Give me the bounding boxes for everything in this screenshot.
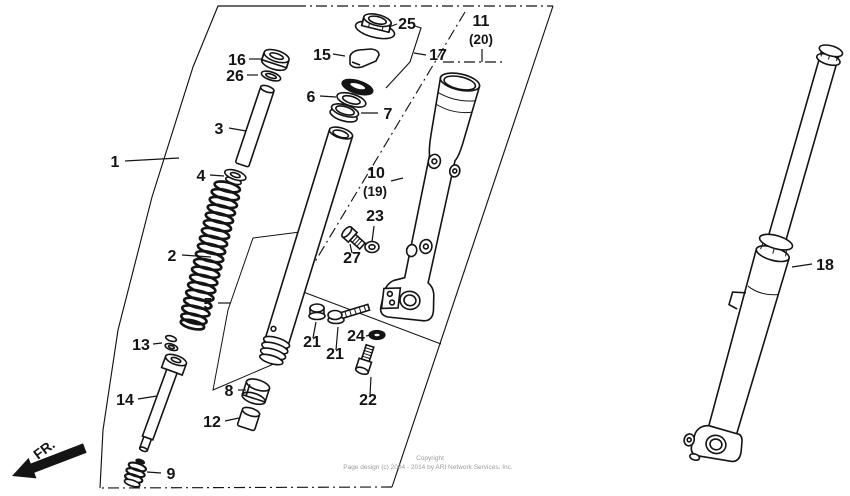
drain-bolt-22-drawing — [355, 344, 376, 376]
part-label-21b: 21 — [326, 346, 344, 363]
parts-diagram-page: FR. Copyright Page design (c) 2004 - 201… — [0, 0, 850, 496]
part-label-9: 9 — [167, 466, 176, 483]
copyright-line2: Page design (c) 2004 - 2014 by ARI Netwo… — [343, 464, 513, 471]
leader-line-1 — [125, 158, 179, 161]
part-label-10b: (19) — [363, 184, 387, 199]
bolt-27-drawing — [340, 225, 367, 251]
exploded-view-canvas: FR. Copyright Page design (c) 2004 - 201… — [0, 0, 850, 496]
part-label-6: 6 — [307, 89, 316, 106]
part-label-4: 4 — [197, 168, 206, 185]
o-ring-26-drawing — [260, 69, 281, 83]
leader-line-6 — [320, 96, 336, 97]
part-label-10: 10 — [367, 165, 385, 182]
leader-line-17 — [414, 53, 426, 55]
part-label-21a: 21 — [303, 334, 321, 351]
part-label-2: 2 — [168, 248, 177, 265]
piston-ring-13-drawing — [162, 334, 180, 351]
fork-bolt-16-drawing — [260, 47, 291, 73]
fork-tube-drawing — [257, 124, 355, 367]
part-label-14: 14 — [116, 392, 134, 409]
bolt-21a-drawing — [309, 304, 325, 320]
leader-line-15 — [333, 54, 345, 56]
part-label-11: 11 — [473, 13, 490, 30]
part-label-7: 7 — [384, 106, 393, 123]
nut-23-drawing — [365, 242, 379, 253]
part-label-12: 12 — [203, 414, 221, 431]
leader-line-4 — [210, 175, 224, 176]
part-label-8: 8 — [225, 383, 234, 400]
part-label-23: 23 — [366, 208, 384, 225]
part-label-22: 22 — [359, 392, 377, 409]
copyright-line1: Copyright — [416, 455, 444, 462]
damper-rod-14-drawing — [133, 352, 188, 455]
leader-line-14 — [138, 396, 157, 399]
boundary-bottom-dashdot — [100, 487, 392, 488]
fr-direction-arrow: FR. — [8, 436, 89, 486]
washer-24-drawing — [369, 331, 385, 340]
part-label-13: 13 — [132, 337, 150, 354]
part-label-25: 25 — [398, 16, 416, 33]
part-label-18: 18 — [816, 257, 834, 274]
bottom-case-10-drawing — [378, 68, 484, 327]
part-label-24: 24 — [347, 328, 365, 345]
leader-line-23 — [372, 226, 374, 242]
oil-lock-piece-12-drawing — [237, 406, 261, 431]
part-label-17: 17 — [429, 47, 447, 64]
part-label-15: 15 — [313, 47, 331, 64]
part-label-11b: (20) — [469, 32, 493, 47]
part-label-16: 16 — [228, 52, 246, 69]
leader-line-10 — [391, 178, 403, 181]
part-label-5: 5 — [204, 296, 213, 313]
seal-stack-6-7-drawing — [329, 75, 375, 126]
leader-line-9 — [147, 472, 161, 473]
stopper-ring-15-drawing — [350, 49, 379, 68]
bolt-21b-drawing — [328, 304, 370, 323]
leader-line-13 — [153, 343, 162, 344]
part-label-27: 27 — [343, 250, 361, 267]
assembly-boundary-group-1 — [100, 6, 553, 488]
leader-line-12 — [225, 418, 239, 421]
damper-rod-3-drawing — [235, 84, 275, 167]
part-label-3: 3 — [215, 121, 224, 138]
rebound-spring-9-drawing — [122, 456, 149, 489]
leader-line-3 — [229, 128, 246, 131]
copyright-block: Copyright Page design (c) 2004 - 2014 by… — [343, 455, 513, 471]
leader-line-18 — [792, 264, 812, 267]
part-label-1: 1 — [111, 154, 120, 171]
slider-bushing-8-drawing — [241, 377, 271, 407]
part-label-26: 26 — [226, 68, 244, 85]
fork-assembly-18-drawing — [679, 37, 850, 472]
